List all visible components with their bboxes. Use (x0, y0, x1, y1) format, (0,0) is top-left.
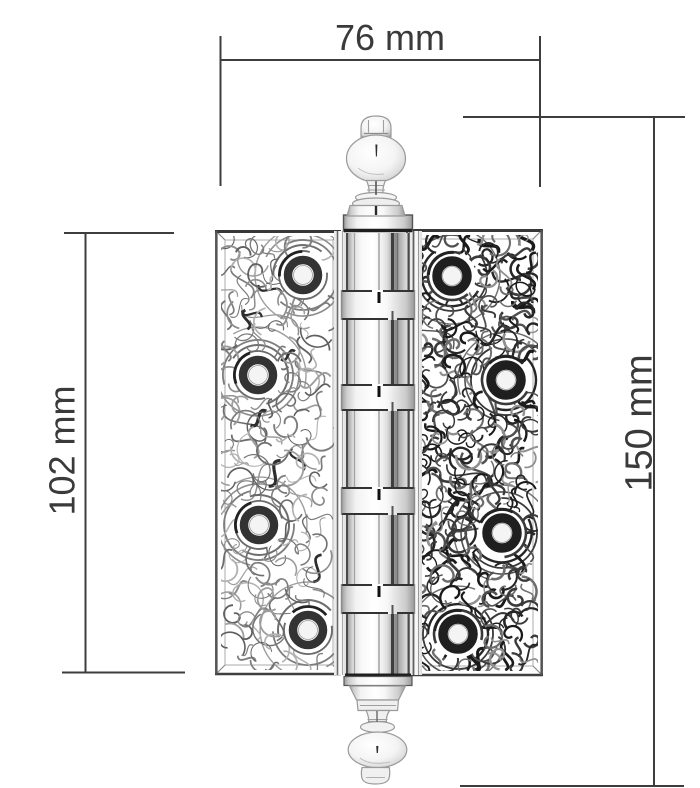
svg-text:102 mm: 102 mm (42, 385, 83, 515)
svg-text:76 mm: 76 mm (335, 17, 445, 58)
svg-text:150 mm: 150 mm (619, 354, 661, 491)
